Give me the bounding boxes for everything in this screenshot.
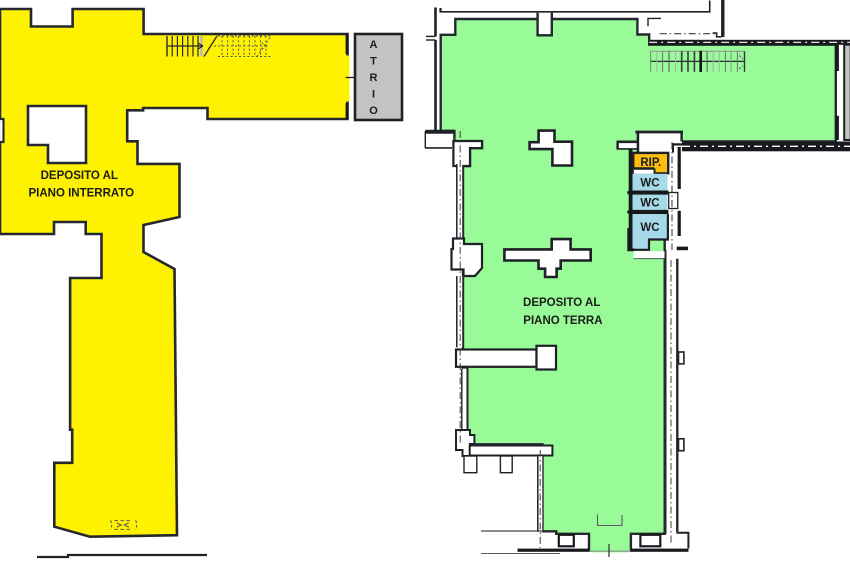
svg-text:O: O [369,105,378,117]
svg-text:DEPOSITO AL: DEPOSITO AL [41,170,118,182]
svg-text:T: T [370,55,377,67]
svg-text:I: I [372,88,375,100]
svg-text:PIANO INTERRATO: PIANO INTERRATO [28,188,134,200]
svg-text:WC: WC [640,177,659,189]
svg-text:WC: WC [640,222,659,234]
svg-text:WC: WC [640,198,659,210]
svg-text:PIANO TERRA: PIANO TERRA [523,315,602,327]
svg-text:RIP.: RIP. [640,157,661,169]
svg-text:A: A [370,39,378,51]
svg-text:R: R [370,72,378,84]
svg-text:DEPOSITO AL: DEPOSITO AL [523,297,600,309]
